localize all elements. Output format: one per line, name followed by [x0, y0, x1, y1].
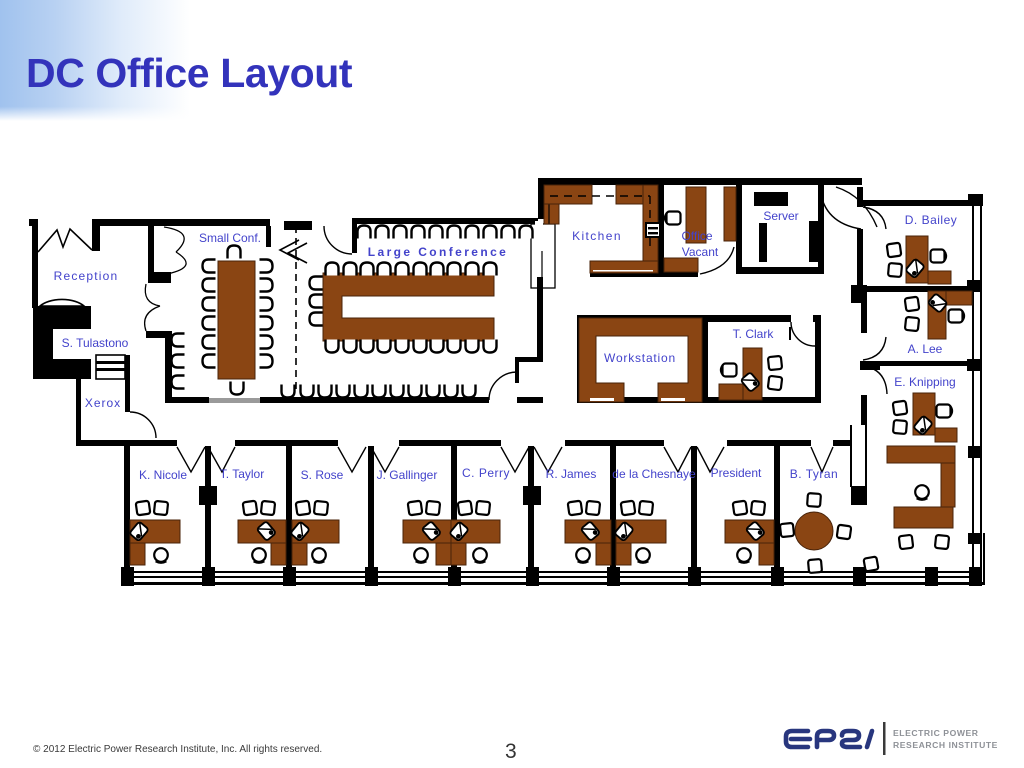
svg-text:J. Gallinger: J. Gallinger [377, 468, 438, 482]
svg-text:K. Nicole: K. Nicole [139, 468, 187, 482]
svg-text:Workstation: Workstation [604, 351, 676, 365]
svg-text:E. Knipping: E. Knipping [894, 375, 955, 389]
svg-text:S. Tulastono: S. Tulastono [62, 336, 129, 350]
svg-text:Xerox: Xerox [85, 396, 121, 410]
svg-text:S. Rose: S. Rose [301, 468, 344, 482]
svg-text:B. Tyran: B. Tyran [790, 467, 838, 481]
svg-text:T. Clark: T. Clark [733, 327, 775, 341]
svg-text:A. Lee: A. Lee [908, 342, 943, 356]
svg-text:T. Taylor: T. Taylor [220, 467, 264, 481]
svg-text:President: President [711, 466, 762, 480]
svg-text:Small Conf.: Small Conf. [199, 231, 261, 245]
svg-text:Vacant: Vacant [682, 245, 719, 259]
svg-text:C. Perry: C. Perry [462, 466, 510, 480]
svg-text:Server: Server [763, 209, 798, 223]
svg-text:Kitchen: Kitchen [572, 229, 622, 243]
svg-text:de la Chesnaye: de la Chesnaye [612, 467, 696, 481]
svg-text:Large Conference: Large Conference [368, 245, 508, 259]
svg-text:R. James: R. James [546, 467, 597, 481]
svg-text:Reception: Reception [54, 269, 119, 283]
svg-text:D. Bailey: D. Bailey [905, 213, 958, 227]
svg-text:Office: Office [681, 229, 712, 243]
